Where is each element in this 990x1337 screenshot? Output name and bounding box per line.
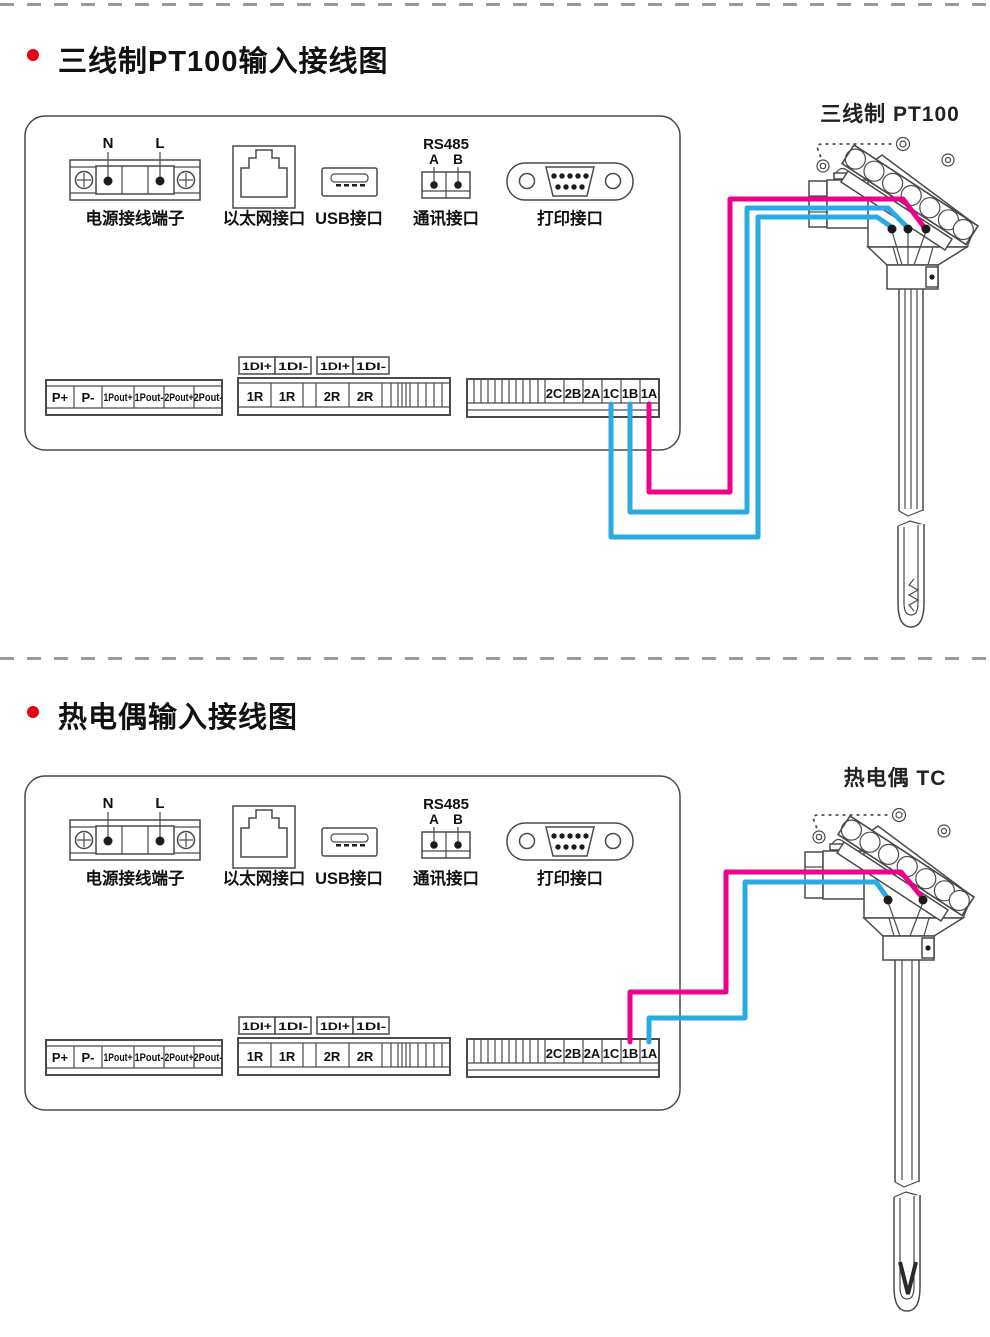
section1-diagram: N L 电源接线端子 以太网接口 USB接口 [0, 0, 990, 660]
di-label: 1DI+ [320, 361, 350, 373]
terminal-cell-label: P- [82, 1050, 95, 1065]
terminal-cell-label: P+ [52, 1050, 69, 1065]
terminal-cell-label: 2R [357, 1049, 374, 1064]
terminal-cell-label: 2R [324, 1049, 341, 1064]
rs485-label: RS485 [423, 136, 469, 153]
terminal-cell-label: 1A [641, 1046, 658, 1061]
power-l-label: L [155, 795, 164, 812]
ethernet-port: 以太网接口 [223, 806, 306, 888]
chain-eyelet-icon [817, 160, 829, 172]
chain-anchor-icon [893, 809, 906, 822]
di-label: 1DI- [278, 361, 308, 373]
terminal-cell-label: 2R [357, 389, 374, 404]
terminal-cell-label: P+ [52, 390, 69, 405]
terminal-cell-label: 2B [565, 1046, 582, 1061]
rs485-b-label: B [453, 152, 463, 167]
wire-1a-blue [649, 882, 886, 1042]
terminal-strip-right: 2C 2B 2A 1C 1B 1A [467, 1039, 659, 1077]
comm-caption: 通讯接口 [413, 868, 479, 888]
comm-port: RS485 A B 通讯接口 [413, 796, 479, 888]
terminal-cell-label: 2Pout- [194, 392, 223, 404]
terminal-cell-label: 1B [622, 1046, 639, 1061]
power-caption: 电源接线端子 [86, 868, 186, 888]
terminal-cell-label: 2Pout+ [165, 1052, 194, 1064]
terminal-cell-label: 2A [584, 386, 601, 401]
ethernet-caption: 以太网接口 [223, 868, 306, 888]
probe-tube [898, 524, 924, 627]
usb-port: USB接口 [315, 828, 383, 888]
print-port: 打印接口 [507, 823, 633, 888]
terminal-cell-label: 1C [603, 1046, 620, 1061]
terminal-strip-middle: 1DI+ 1DI- 1DI+ 1DI- 1R 1R 2R 2R [238, 1017, 450, 1075]
di-label: 1DI+ [320, 1021, 350, 1033]
terminal-cell-label: 2C [546, 1046, 563, 1061]
power-n-label: N [103, 795, 114, 812]
terminal-cell-label: 1B [622, 386, 639, 401]
terminal-cell-label: 1A [641, 386, 658, 401]
wire-1c-blue [611, 217, 890, 537]
terminal-strip-middle: 1DI+ 1DI- 1DI+ 1DI- 1R 1R 2R 2R [238, 357, 450, 415]
wiring-diagram-page: 三线制PT100输入接线图 热电偶输入接线图 三线制 PT100 热电偶 TC … [0, 0, 990, 1337]
hex-fitting [805, 852, 823, 898]
terminal-strip-left: P+ P- 1Pout+ 1Pout- 2Pout+ 2Pout- [46, 380, 223, 415]
print-caption: 打印接口 [537, 868, 603, 888]
di-label: 1DI- [278, 1021, 308, 1033]
di-label: 1DI+ [242, 1021, 272, 1033]
terminal-cell-label: 1Pout+ [104, 1052, 133, 1064]
print-caption: 打印接口 [537, 208, 603, 228]
ethernet-port: 以太网接口 [223, 146, 306, 228]
terminal-cell-label: 2A [584, 1046, 601, 1061]
terminal-cell-label: 1R [279, 1049, 296, 1064]
terminal-cell-label: 1R [279, 389, 296, 404]
di-label: 1DI- [356, 1021, 386, 1033]
terminal-cell-label: 1Pout+ [104, 392, 133, 404]
rs485-a-label: A [429, 152, 439, 167]
terminal-cell-label: 2Pout+ [165, 392, 194, 404]
terminal-cell-label: 1R [247, 1049, 264, 1064]
power-terminal-block: N L 电源接线端子 [70, 135, 200, 228]
power-l-label: L [155, 135, 164, 152]
usb-caption: USB接口 [315, 868, 383, 888]
terminal-cell-label: P- [82, 390, 95, 405]
print-port: 打印接口 [507, 163, 633, 228]
chain-anchor-icon [897, 138, 910, 151]
section2-diagram: N L 电源接线端子 以太网接口 USB接口 RS485 [0, 660, 990, 1337]
terminal-cell-label: 2C [546, 386, 563, 401]
terminal-cell-label: 1C [603, 386, 620, 401]
cap-screw-icon [938, 825, 950, 837]
power-n-label: N [103, 135, 114, 152]
wire-1b-blue [630, 208, 906, 512]
break-symbol [895, 1181, 919, 1187]
power-terminal-block: N L 电源接线端子 [70, 795, 200, 888]
terminal-strip-left: P+ P- 1Pout+ 1Pout- 2Pout+ 2Pout- [46, 1040, 223, 1075]
break-symbol [899, 510, 923, 516]
usb-caption: USB接口 [315, 208, 383, 228]
ethernet-caption: 以太网接口 [223, 208, 306, 228]
rs485-a-label: A [429, 812, 439, 827]
comm-port: RS485 A B 通讯接口 [413, 136, 479, 228]
usb-port: USB接口 [315, 168, 383, 228]
terminal-cell-label: 1Pout- [135, 1052, 164, 1064]
sensor-terminal-dots [888, 225, 931, 234]
terminal-cell-label: 1R [247, 389, 264, 404]
cap-screw-icon [942, 154, 954, 166]
terminal-cell-label: 1Pout- [135, 392, 164, 404]
power-caption: 电源接线端子 [86, 208, 186, 228]
di-label: 1DI+ [242, 361, 272, 373]
rs485-b-label: B [453, 812, 463, 827]
terminal-cell-label: 2Pout- [194, 1052, 223, 1064]
chain-eyelet-icon [813, 831, 825, 843]
di-label: 1DI- [356, 361, 386, 373]
terminal-cell-label: 2R [324, 389, 341, 404]
comm-caption: 通讯接口 [413, 208, 479, 228]
rs485-label: RS485 [423, 796, 469, 813]
terminal-cell-label: 2B [565, 386, 582, 401]
hex-fitting [809, 181, 827, 227]
